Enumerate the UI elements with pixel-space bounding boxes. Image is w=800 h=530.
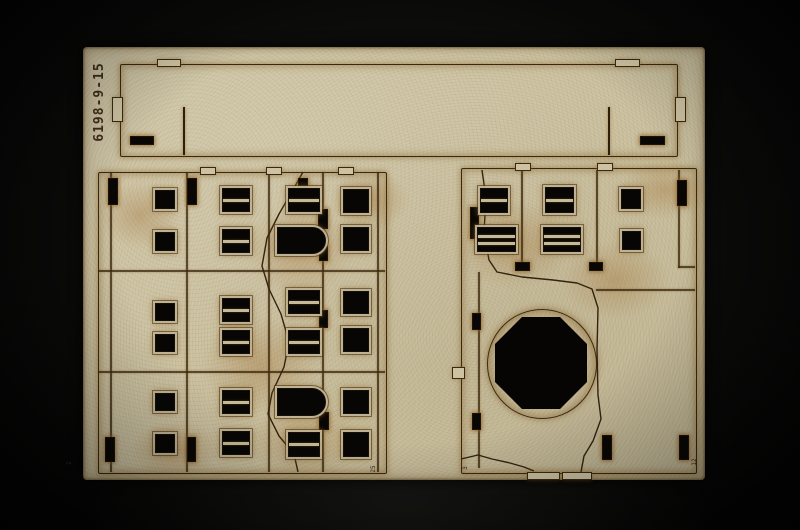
window-glazing-bar [478, 242, 515, 245]
right-facade-slot-cutout [677, 180, 687, 206]
window-glazing-bar [544, 235, 580, 238]
right-facade-floor-line [596, 289, 695, 291]
left-facade-window-square [343, 227, 369, 251]
window-glazing-bar [223, 309, 249, 312]
left-facade-tab [338, 167, 354, 175]
right-facade-window-pane2 [545, 187, 574, 213]
sheet-corner-mark: 2 [66, 456, 74, 470]
right-facade-panel-line [478, 272, 480, 468]
left-facade-floor-line [98, 371, 385, 373]
right-facade-window-pane3 [543, 227, 581, 252]
left-facade-panel-line [186, 172, 188, 472]
right-facade-window-pane3 [477, 227, 516, 252]
left-facade-window-square [343, 432, 369, 457]
right-facade-window-square [621, 189, 641, 209]
window-glazing-bar [478, 235, 515, 238]
left-facade-slot-cutout [318, 209, 328, 229]
top-wall-strip-cut-outline [120, 64, 678, 157]
top-wall-strip-slot-cutout [130, 136, 154, 145]
left-facade-panel-line [268, 172, 270, 472]
left-facade-tab [200, 167, 216, 175]
left-facade-window-square [343, 328, 369, 352]
right-facade-window-square [622, 231, 641, 250]
top-wall-strip-tab [675, 97, 686, 122]
left-facade-window-pane2 [222, 390, 250, 414]
left-facade-window-pane2 [222, 431, 250, 455]
window-glazing-bar [481, 199, 507, 202]
left-facade-window-square [343, 390, 369, 414]
window-glazing-bar [289, 301, 319, 304]
left-facade-slot-cutout [187, 178, 197, 205]
window-glazing-bar [289, 199, 319, 202]
window-glazing-bar [546, 199, 573, 202]
left-facade-slot-cutout [105, 437, 115, 462]
left-facade-window-arch [277, 227, 326, 254]
left-facade-window-pane2 [222, 330, 250, 354]
left-facade-window-pane2 [288, 290, 320, 314]
window-glazing-bar [223, 341, 249, 344]
right-facade-tab [597, 163, 613, 171]
left-facade-window-square [155, 190, 175, 209]
left-facade-window-pane2 [288, 432, 320, 457]
left-facade-window-pane2 [222, 188, 250, 212]
right-facade-slot-cutout [602, 435, 612, 460]
left-facade-window-square [155, 232, 175, 251]
window-glazing-bar [223, 240, 249, 243]
right-facade-slot-cutout [515, 262, 530, 271]
left-facade-tab [266, 167, 282, 175]
left-facade-window-square [155, 434, 175, 453]
right-facade-tab [527, 472, 560, 480]
window-glazing-bar [544, 242, 580, 245]
left-facade-window-square [343, 189, 369, 213]
left-facade-window-pane2 [288, 188, 320, 212]
left-facade-window-pane2 [222, 229, 250, 253]
right-facade-window-pane2 [480, 188, 508, 213]
window-glazing-bar [223, 199, 249, 202]
left-facade-window-square [155, 334, 175, 352]
window-glazing-bar [223, 401, 249, 404]
right-facade-tab [562, 472, 592, 480]
right-facade-tab [452, 367, 465, 379]
left-facade-window-arch [277, 388, 326, 416]
top-wall-strip-joint-slit [608, 107, 610, 155]
right-facade-floor-line [678, 266, 695, 268]
window-glazing-bar [289, 443, 319, 446]
left-facade-slot-cutout [319, 310, 328, 328]
left-facade-window-pane2 [222, 298, 250, 322]
window-glazing-bar [289, 341, 319, 344]
right-facade-panel-line [596, 170, 598, 265]
left-facade-window-square [155, 303, 175, 321]
left-facade-panel-line [110, 172, 112, 472]
left-facade-window-square [155, 393, 175, 411]
photo-stage: 6198-9-15 225312 [0, 0, 800, 530]
right-facade-slot-cutout [472, 413, 481, 430]
right-facade-slot-cutout [679, 435, 689, 460]
window-glazing-bar [223, 442, 249, 445]
right-facade-tab [515, 163, 531, 171]
right-facade-slot-cutout [589, 262, 603, 271]
right-facade-cut-outline [461, 168, 697, 474]
left-facade-window-square [343, 291, 369, 314]
part-number-engraving: 6198-9-15 [92, 62, 108, 142]
sheet-corner-mark: 12 [691, 455, 699, 469]
sheet-corner-mark: 3 [462, 461, 470, 475]
left-facade-floor-line [98, 270, 385, 272]
top-wall-strip-slot-cutout [640, 136, 665, 145]
left-facade-window-pane2 [288, 330, 320, 354]
top-wall-strip-tab [112, 97, 123, 122]
right-facade-slot-cutout [472, 313, 481, 330]
top-wall-strip-tab [157, 59, 181, 67]
left-facade-cut-outline [98, 172, 387, 474]
top-wall-strip-joint-slit [183, 107, 185, 155]
left-facade-slot-cutout [319, 412, 329, 430]
left-facade-slot-cutout [108, 178, 118, 205]
left-facade-slot-cutout [187, 437, 196, 462]
right-facade-panel-line [521, 170, 523, 265]
left-facade-panel-line [377, 172, 379, 472]
top-wall-strip-tab [615, 59, 640, 67]
right-facade-octagon-cutout [495, 317, 587, 409]
sheet-corner-mark: 25 [370, 462, 378, 476]
